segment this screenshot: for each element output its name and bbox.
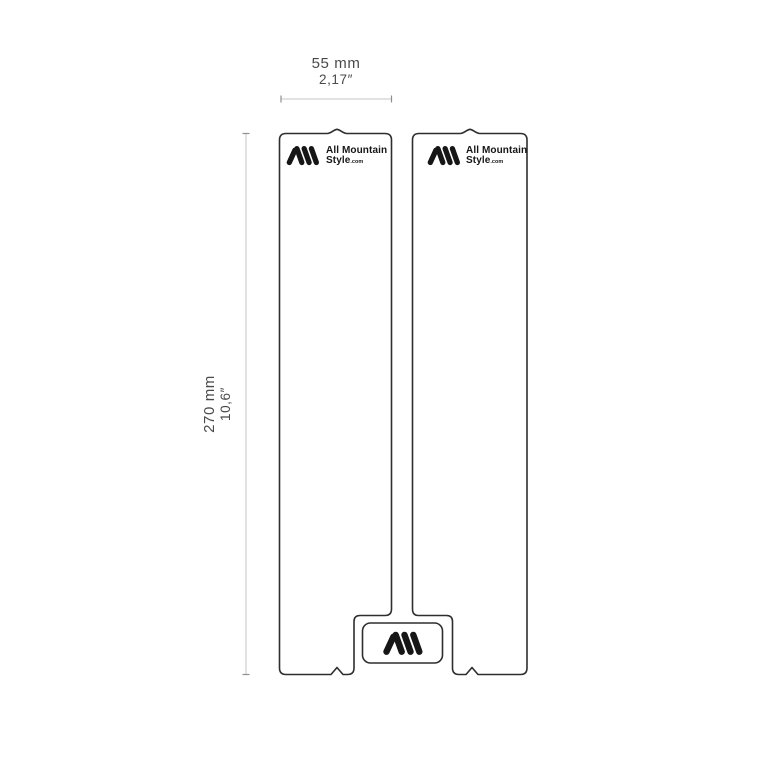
product-dimension-diagram: 55 mm 2,17″ 270 mm 10,6″ All Mountain St…	[0, 0, 768, 768]
width-metric-value: 55 mm	[266, 55, 406, 72]
height-metric-value: 270 mm	[201, 329, 218, 479]
width-dimension-label: 55 mm 2,17″	[266, 55, 406, 87]
height-dimension-label: 270 mm 10,6″	[201, 329, 243, 479]
badge-outline	[363, 623, 443, 663]
brand-wordmark-right: All Mountain Style.com	[466, 146, 527, 167]
brand-suffix: .com	[490, 159, 503, 165]
brand-line2: Style.com	[466, 156, 527, 168]
brand-line2: Style.com	[326, 156, 387, 168]
height-imperial-value: 10,6″	[218, 329, 233, 479]
diagram-artwork	[0, 0, 768, 768]
width-dimension-line	[281, 96, 392, 103]
brand-suffix: .com	[350, 159, 363, 165]
brand-wordmark-left: All Mountain Style.com	[326, 146, 387, 167]
left-strip-outline	[280, 129, 392, 674]
right-strip-outline	[413, 129, 528, 674]
height-dimension-line	[243, 134, 250, 675]
width-imperial-value: 2,17″	[266, 72, 406, 87]
